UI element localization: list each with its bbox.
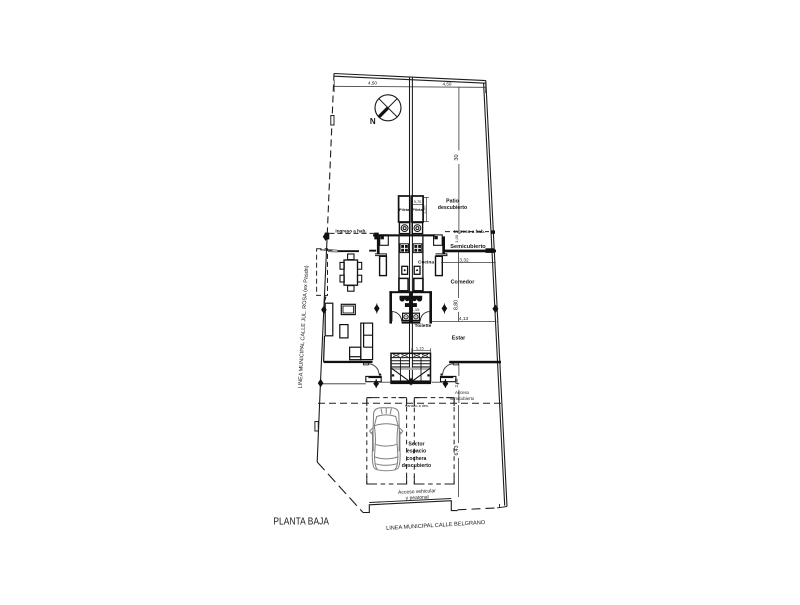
svg-text:espacio: espacio: [407, 449, 426, 455]
svg-text:Cocina: Cocina: [418, 260, 434, 266]
svg-text:4,50: 4,50: [443, 82, 452, 87]
svg-text:1,00: 1,00: [454, 234, 459, 243]
svg-text:30: 30: [454, 154, 460, 160]
svg-text:Comedor: Comedor: [451, 279, 476, 285]
svg-text:semicubierto: semicubierto: [450, 396, 475, 401]
svg-text:transito a des.: transito a des.: [405, 404, 429, 408]
svg-text:8,80: 8,80: [454, 300, 460, 310]
svg-text:PLANTA BAJA: PLANTA BAJA: [273, 516, 329, 527]
svg-text:1,15: 1,15: [416, 346, 425, 351]
svg-text:Ingreso a hab.: Ingreso a hab.: [335, 228, 366, 233]
svg-text:Toilette: Toilette: [415, 323, 432, 329]
svg-text:1,15: 1,15: [412, 307, 421, 312]
svg-text:descubierto: descubierto: [402, 463, 431, 469]
svg-text:0,70: 0,70: [414, 199, 422, 204]
svg-text:y peatonal: y peatonal: [406, 494, 429, 501]
svg-text:Semicubierto: Semicubierto: [450, 244, 486, 250]
svg-text:Sector: Sector: [408, 441, 424, 447]
svg-text:4,50: 4,50: [368, 81, 377, 86]
svg-text:Ingreso a hab.: Ingreso a hab.: [454, 229, 485, 234]
svg-text:Patio: Patio: [446, 198, 459, 204]
svg-text:6,43: 6,43: [454, 445, 460, 455]
svg-text:2,50: 2,50: [454, 378, 459, 387]
svg-text:cochera: cochera: [407, 456, 427, 462]
svg-text:N: N: [370, 117, 376, 126]
svg-text:descubierto: descubierto: [438, 205, 467, 211]
svg-text:Estar: Estar: [452, 336, 466, 342]
svg-text:4,13: 4,13: [459, 316, 469, 322]
svg-text:Acceso: Acceso: [455, 390, 470, 395]
svg-text:2,60: 2,60: [421, 205, 426, 214]
svg-text:3,32: 3,32: [459, 257, 469, 263]
svg-text:Pileta: Pileta: [399, 208, 410, 212]
